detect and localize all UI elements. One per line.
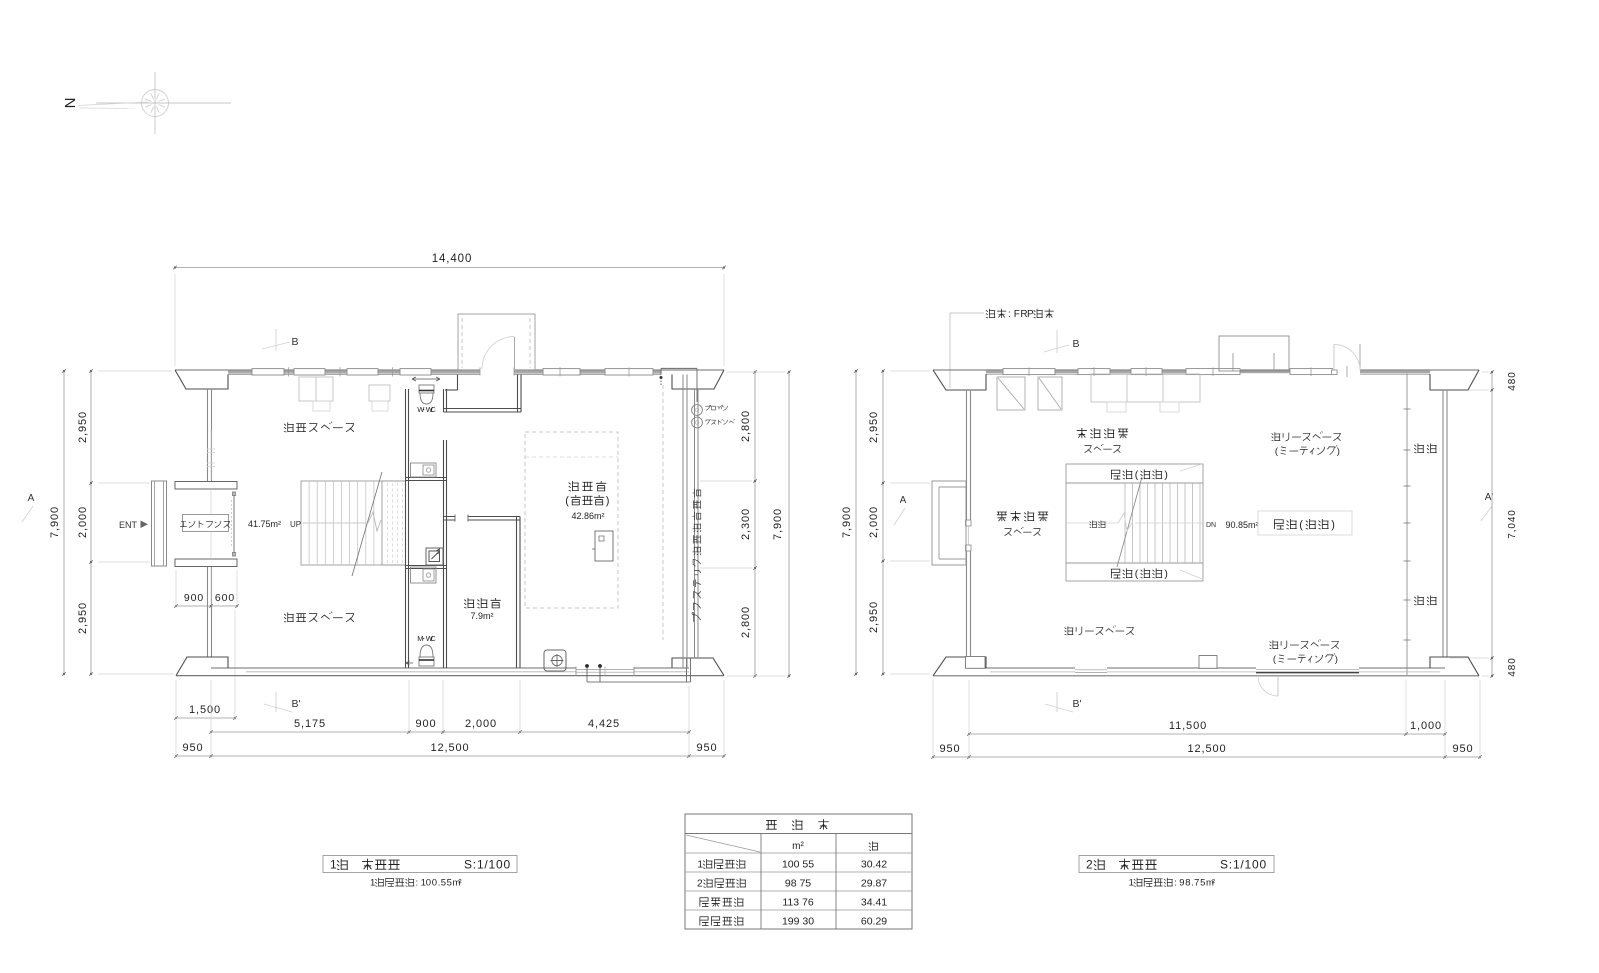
svg-text:): ) bbox=[1337, 446, 1340, 457]
svg-text:30.42: 30.42 bbox=[861, 859, 887, 871]
svg-text:5: 5 bbox=[447, 878, 452, 889]
svg-text:1: 1 bbox=[330, 858, 337, 872]
svg-text:1: 1 bbox=[697, 860, 703, 871]
svg-text:113 76: 113 76 bbox=[782, 897, 813, 909]
svg-text:7.9m²: 7.9m² bbox=[470, 611, 493, 621]
svg-text:(: ( bbox=[1135, 469, 1139, 481]
svg-text:480: 480 bbox=[1507, 371, 1518, 390]
svg-text:2,800: 2,800 bbox=[740, 410, 752, 442]
svg-text::: : bbox=[1008, 309, 1011, 320]
svg-text:7,900: 7,900 bbox=[772, 508, 784, 540]
svg-text:2,000: 2,000 bbox=[77, 506, 89, 538]
svg-text:): ) bbox=[1331, 519, 1335, 531]
svg-text:950: 950 bbox=[182, 742, 203, 754]
svg-text:(: ( bbox=[1135, 568, 1139, 580]
svg-text:2: 2 bbox=[1086, 858, 1093, 872]
svg-text:2,300: 2,300 bbox=[740, 508, 752, 540]
svg-text:m²: m² bbox=[792, 841, 804, 852]
svg-text:7,900: 7,900 bbox=[49, 506, 61, 538]
svg-text:600: 600 bbox=[215, 592, 235, 604]
svg-text:12,500: 12,500 bbox=[1187, 743, 1226, 755]
svg-text:1: 1 bbox=[1129, 878, 1134, 889]
svg-text::: : bbox=[1174, 878, 1177, 889]
svg-text:UP: UP bbox=[290, 520, 301, 529]
svg-text:4,425: 4,425 bbox=[588, 718, 620, 730]
svg-text:34.41: 34.41 bbox=[861, 897, 887, 909]
svg-text:): ) bbox=[606, 495, 610, 507]
svg-text:): ) bbox=[1164, 568, 1168, 580]
svg-text:2,800: 2,800 bbox=[740, 606, 752, 638]
svg-text:60.29: 60.29 bbox=[861, 916, 887, 928]
svg-text:41.75m²: 41.75m² bbox=[248, 519, 281, 529]
svg-text:2,950: 2,950 bbox=[77, 602, 89, 634]
svg-text:2: 2 bbox=[697, 879, 703, 890]
svg-text:A: A bbox=[28, 493, 35, 504]
svg-text:29.87: 29.87 bbox=[861, 878, 887, 890]
svg-text:): ) bbox=[1335, 654, 1338, 665]
svg-text:²: ² bbox=[1212, 878, 1215, 889]
svg-text:90.85m²: 90.85m² bbox=[1225, 520, 1258, 530]
svg-text:12,500: 12,500 bbox=[430, 742, 469, 754]
svg-text:0: 0 bbox=[426, 878, 431, 889]
svg-text:B: B bbox=[291, 336, 298, 348]
svg-text:11,500: 11,500 bbox=[1169, 720, 1207, 732]
svg-text:1,500: 1,500 bbox=[189, 704, 221, 716]
svg-text:M: M bbox=[417, 634, 423, 643]
svg-text:(: ( bbox=[1299, 519, 1303, 531]
svg-text:14,400: 14,400 bbox=[432, 253, 473, 265]
svg-text:1: 1 bbox=[370, 878, 375, 889]
svg-text:100 55: 100 55 bbox=[782, 859, 814, 871]
svg-text:(: ( bbox=[565, 495, 569, 507]
svg-text:480: 480 bbox=[1507, 657, 1518, 676]
svg-text:900: 900 bbox=[184, 592, 204, 604]
svg-text:950: 950 bbox=[696, 742, 717, 754]
svg-text:2,950: 2,950 bbox=[77, 411, 89, 443]
svg-text:S:1/100: S:1/100 bbox=[464, 858, 511, 872]
svg-text:950: 950 bbox=[939, 743, 960, 755]
svg-text:7: 7 bbox=[1194, 878, 1199, 889]
svg-text:B: B bbox=[1072, 338, 1079, 350]
svg-text:5: 5 bbox=[441, 878, 446, 889]
svg-text:N: N bbox=[62, 98, 79, 109]
svg-text:DN: DN bbox=[1206, 522, 1216, 529]
svg-text:S:1/100: S:1/100 bbox=[1220, 858, 1267, 872]
svg-text:9: 9 bbox=[1179, 878, 1184, 889]
svg-text:900: 900 bbox=[415, 718, 436, 730]
svg-text:2,000: 2,000 bbox=[868, 506, 880, 538]
svg-text:8: 8 bbox=[1185, 878, 1190, 889]
svg-text:2,950: 2,950 bbox=[868, 601, 880, 633]
svg-text:²: ² bbox=[459, 878, 462, 889]
svg-text:): ) bbox=[1164, 469, 1168, 481]
svg-text:C: C bbox=[430, 634, 436, 643]
svg-text:A: A bbox=[900, 495, 907, 506]
svg-text:950: 950 bbox=[1452, 743, 1473, 755]
svg-text:98 75: 98 75 bbox=[785, 878, 811, 890]
svg-text:P: P bbox=[1027, 309, 1034, 320]
svg-text:2,950: 2,950 bbox=[868, 411, 880, 443]
svg-text:5: 5 bbox=[1200, 878, 1205, 889]
svg-text:B': B' bbox=[1072, 698, 1081, 710]
svg-text:0: 0 bbox=[432, 878, 437, 889]
svg-text:F: F bbox=[1014, 309, 1020, 320]
svg-text:C: C bbox=[430, 405, 436, 414]
svg-text:7,900: 7,900 bbox=[841, 506, 853, 538]
svg-text:42.86m²: 42.86m² bbox=[571, 511, 604, 521]
svg-text:7,040: 7,040 bbox=[1507, 509, 1518, 539]
svg-text:2,000: 2,000 bbox=[465, 718, 497, 730]
svg-text:199 30: 199 30 bbox=[782, 916, 814, 928]
svg-text:ENT: ENT bbox=[119, 520, 138, 530]
svg-text:B': B' bbox=[291, 698, 300, 710]
svg-text:1,000: 1,000 bbox=[1410, 720, 1442, 732]
svg-text::: : bbox=[416, 878, 419, 889]
svg-text:5,175: 5,175 bbox=[294, 718, 326, 730]
